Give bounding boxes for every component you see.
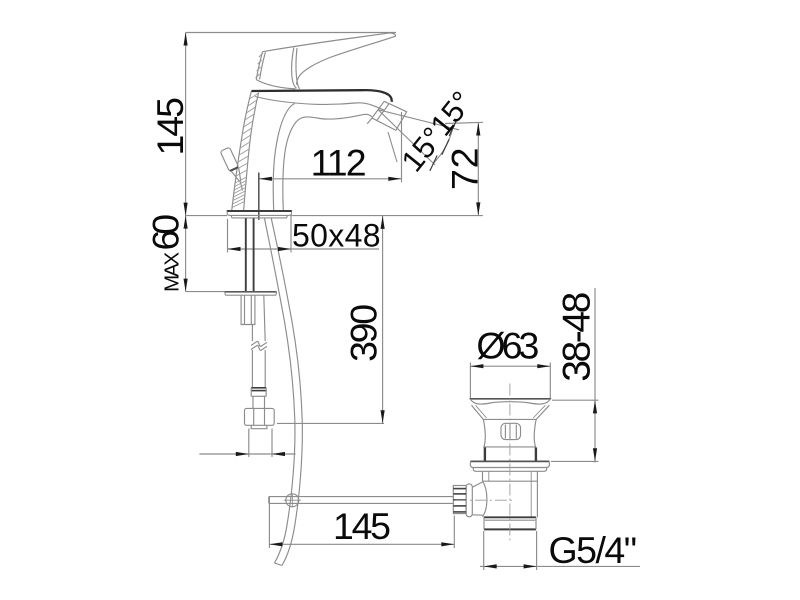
- svg-text:145: 145: [333, 505, 391, 547]
- svg-text:60: 60: [145, 214, 187, 251]
- svg-text:G5/4": G5/4": [549, 529, 638, 571]
- svg-text:MAX: MAX: [161, 252, 184, 292]
- svg-text:38-48: 38-48: [556, 292, 599, 382]
- svg-text:145: 145: [149, 97, 191, 156]
- svg-text:112: 112: [311, 142, 367, 184]
- svg-text:390: 390: [343, 304, 385, 362]
- svg-text:72: 72: [444, 148, 486, 191]
- svg-text:Ø63: Ø63: [476, 325, 539, 367]
- svg-text:50x48: 50x48: [292, 218, 381, 254]
